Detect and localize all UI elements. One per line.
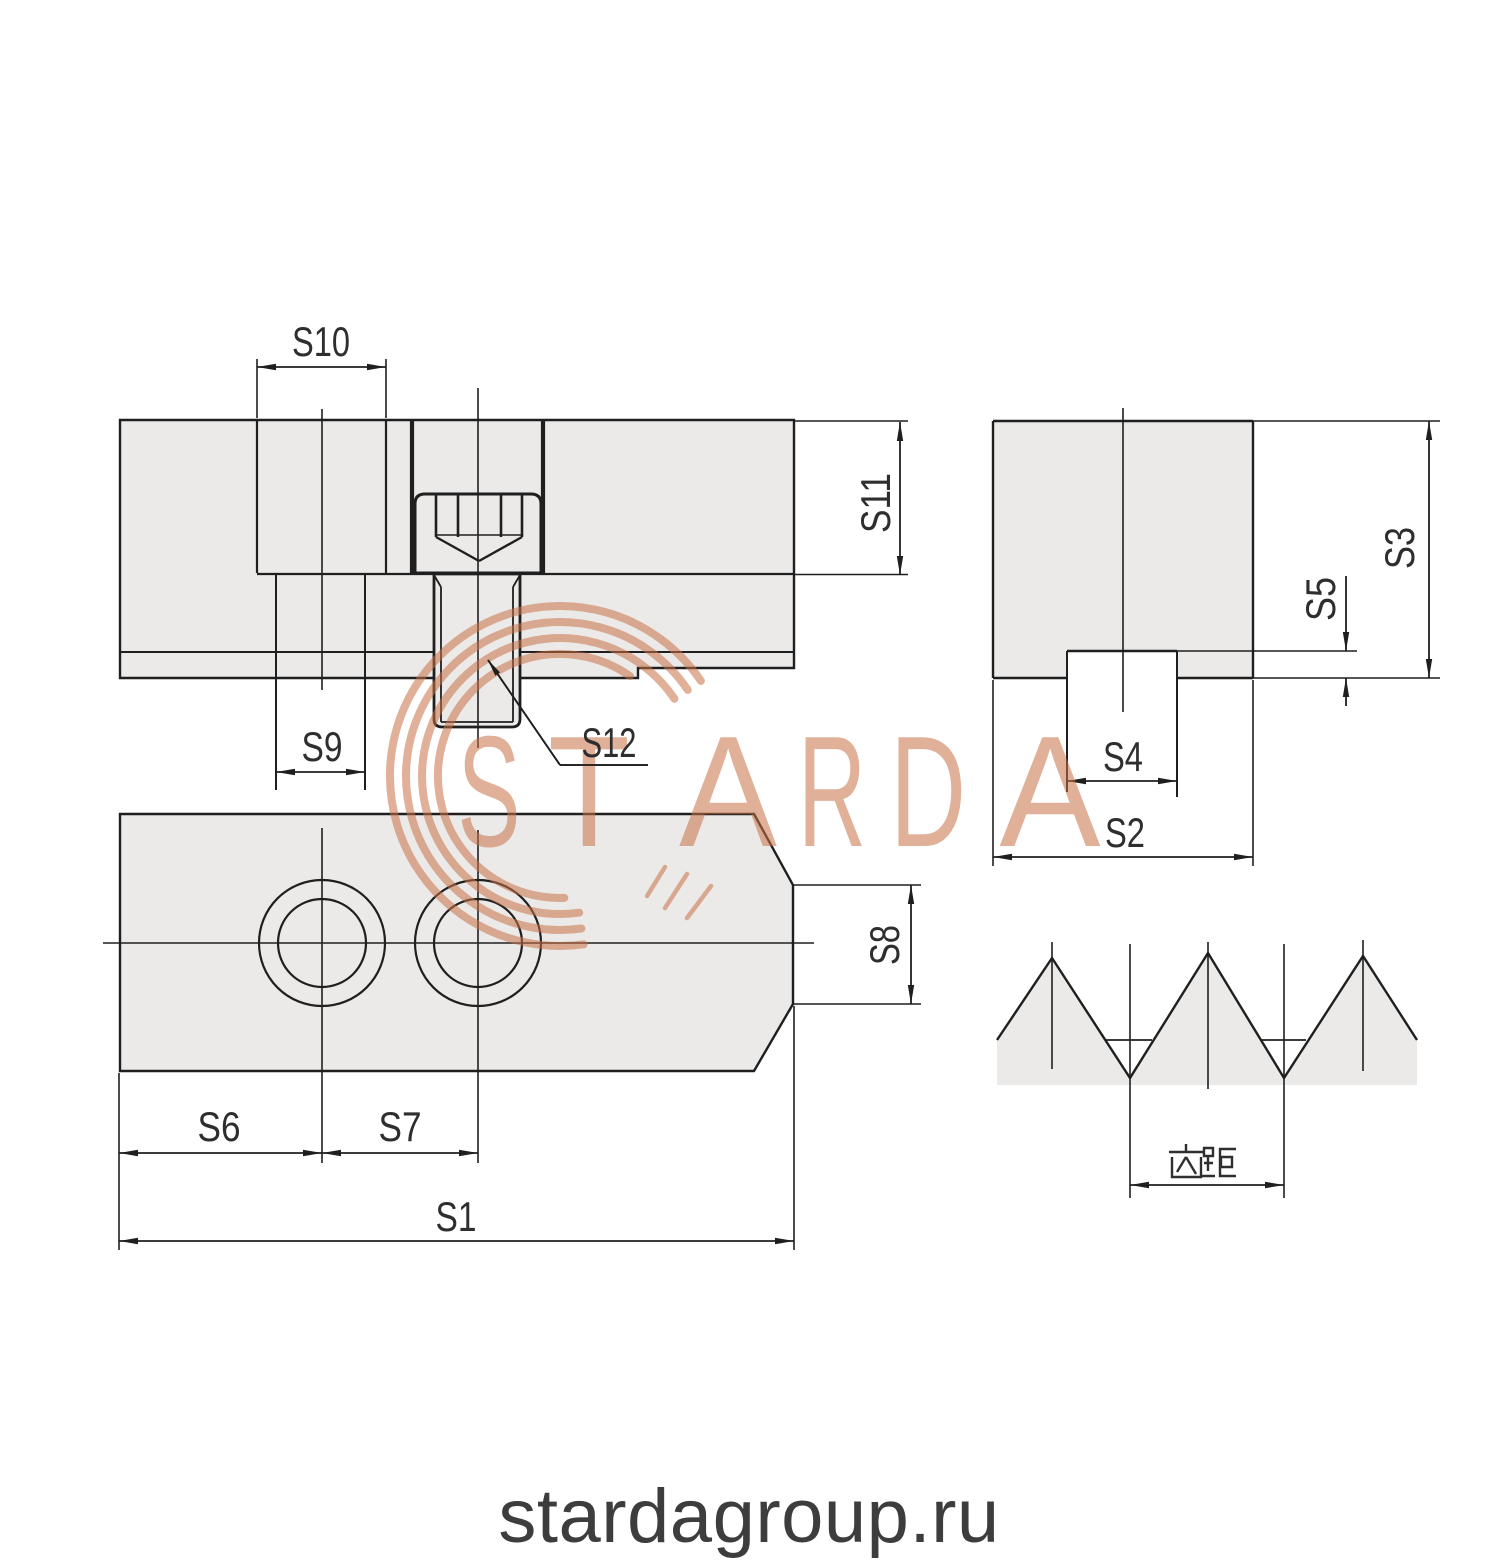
svg-text:S10: S10 — [292, 318, 350, 365]
svg-text:S1: S1 — [436, 1193, 477, 1240]
svg-text:S9: S9 — [302, 723, 343, 770]
svg-text:stardagroup.ru: stardagroup.ru — [498, 1474, 999, 1559]
svg-text:S7: S7 — [379, 1103, 422, 1150]
svg-text:A: A — [679, 704, 777, 880]
svg-text:S2: S2 — [1105, 809, 1145, 856]
svg-text:S11: S11 — [852, 473, 899, 533]
svg-text:S8: S8 — [861, 925, 908, 965]
svg-text:S4: S4 — [1103, 733, 1143, 780]
svg-text:S6: S6 — [198, 1103, 241, 1150]
svg-text:A: A — [999, 703, 1100, 879]
svg-text:S5: S5 — [1297, 577, 1344, 621]
svg-text:S12: S12 — [582, 719, 637, 766]
svg-text:S3: S3 — [1376, 527, 1423, 569]
svg-text:R: R — [798, 703, 866, 880]
svg-text:D: D — [890, 704, 966, 880]
svg-text:S: S — [457, 703, 520, 880]
